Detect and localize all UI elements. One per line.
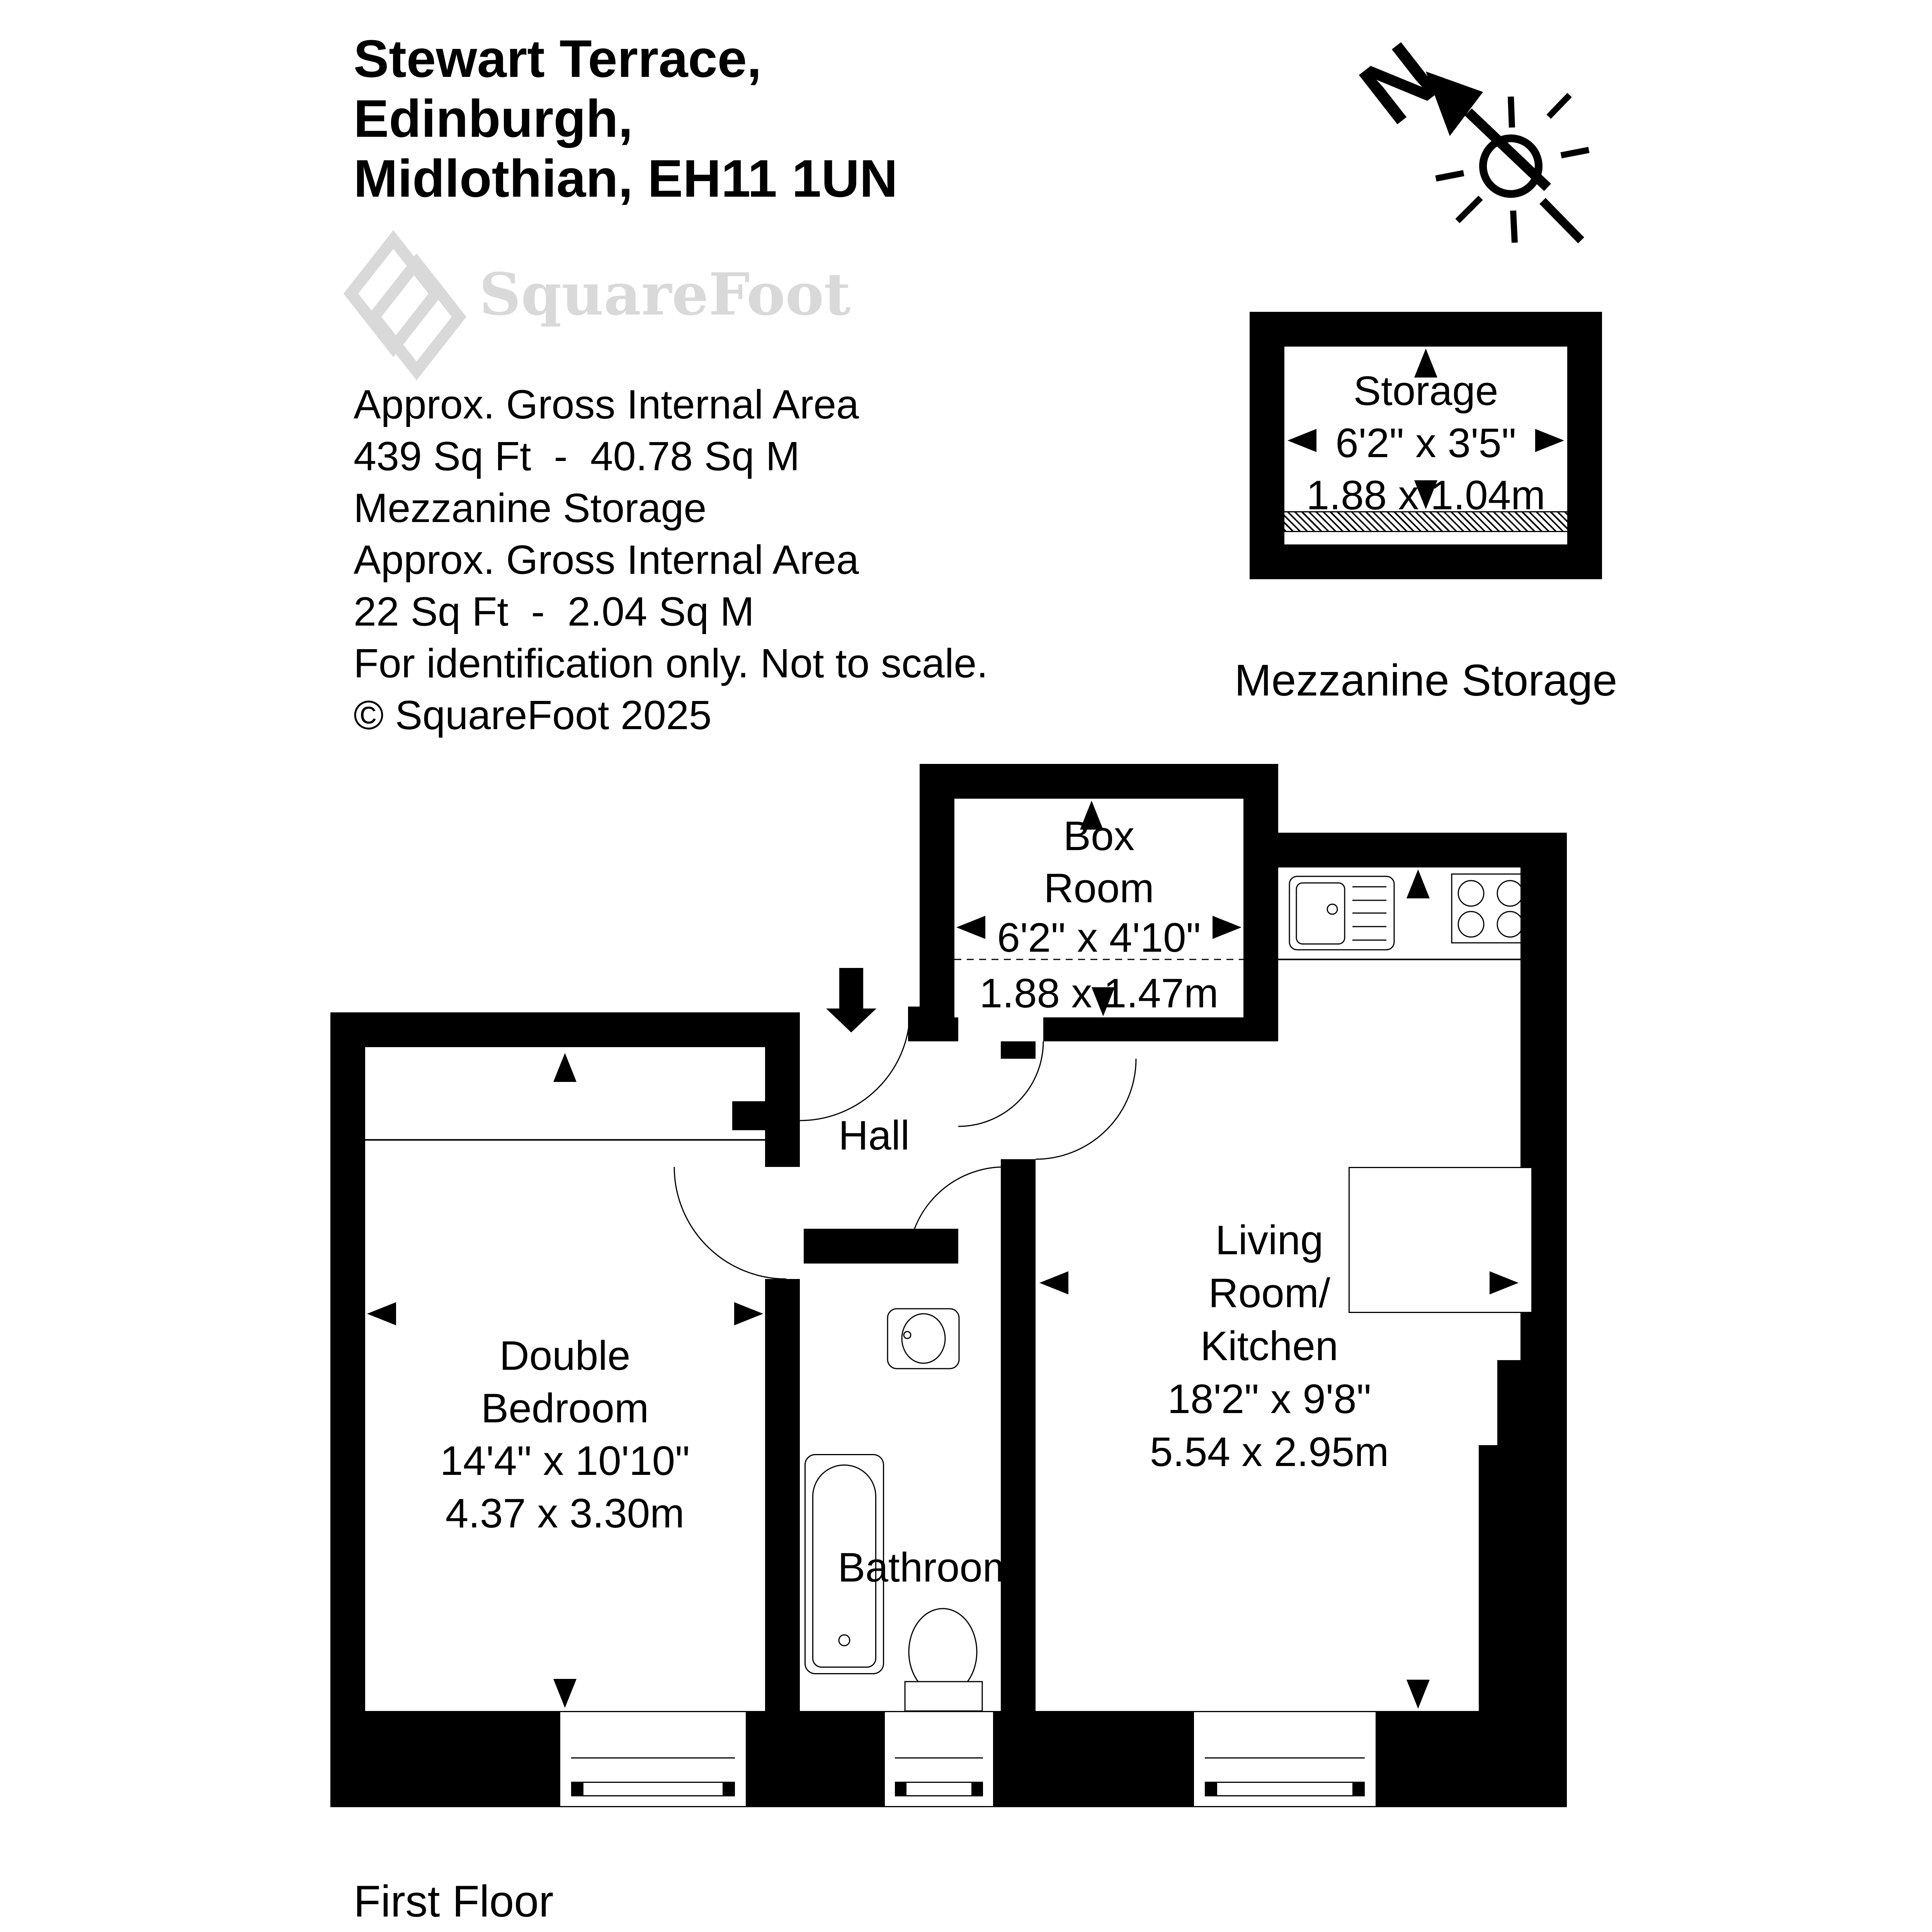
bedroom-label-line2: Bedroom <box>481 1386 649 1431</box>
basin-icon <box>888 1309 959 1369</box>
living-label-line2: Room/ <box>1208 1270 1330 1316</box>
floor-label: First Floor <box>354 1877 554 1926</box>
hall-label: Hall <box>838 1113 910 1158</box>
bedroom-dimension-arrow-left-icon <box>367 1302 396 1325</box>
bath-drain-icon <box>839 1635 850 1646</box>
boxroom-label-line1: Box <box>1063 813 1134 859</box>
bathroom-door-arc <box>908 1167 1005 1264</box>
north-arrow-icon: N <box>1342 23 1589 243</box>
bedroom-dimension-arrow-up-icon <box>553 1053 577 1082</box>
mezz-dimension-arrow-down-icon <box>1414 480 1437 509</box>
kitchen-hob-icon <box>1452 874 1530 943</box>
living-dims-imperial: 18'2" x 9'8" <box>1167 1376 1371 1422</box>
bedroom-label-line1: Double <box>499 1333 630 1379</box>
living-label-line3: Kitchen <box>1201 1323 1338 1369</box>
bathroom-label: Bathroom <box>838 1545 1017 1590</box>
living-dimension-arrow-right-icon <box>1490 1271 1519 1294</box>
boxroom-label-line2: Room <box>1044 866 1154 911</box>
living-dimension-arrow-up-icon <box>1406 869 1430 898</box>
bedroom-door-arc <box>674 1167 786 1279</box>
boxroom-dimension-arrow-left-icon <box>956 916 985 939</box>
boxroom-dimension-arrow-right-icon <box>1213 916 1242 939</box>
squarefoot-logo-icon <box>351 240 459 371</box>
living-dimension-arrow-down-icon <box>1406 1680 1430 1709</box>
living-dims-metric: 5.54 x 2.95m <box>1150 1429 1389 1475</box>
floorplan-page: Stewart Terrace, Edinburgh, Midlothian, … <box>0 0 1932 1932</box>
entrance-arrow-icon <box>826 968 876 1032</box>
mezz-dimension-arrow-right-icon <box>1535 429 1564 452</box>
bedroom-dims-metric: 4.37 x 3.30m <box>446 1491 685 1536</box>
kitchen-sink-icon <box>1289 876 1394 950</box>
living-dimension-arrow-left-icon <box>1039 1271 1068 1294</box>
living-label-line1: Living <box>1215 1218 1323 1263</box>
living-door-arc <box>1036 1059 1136 1159</box>
mezz-dimension-arrow-left-icon <box>1287 429 1316 452</box>
mezz-dimension-arrow-up-icon <box>1414 349 1437 378</box>
boxroom-door-arc <box>958 1041 1043 1126</box>
bedroom-dims-imperial: 14'4" x 10'10" <box>440 1438 690 1484</box>
boxroom-dims-metric: 1.88 x 1.47m <box>980 971 1219 1016</box>
toilet-icon <box>905 1609 982 1711</box>
plan-graphics-layer: N <box>0 0 1932 1932</box>
boxroom-dims-imperial: 6'2" x 4'10" <box>997 915 1201 961</box>
bedroom-dimension-arrow-down-icon <box>553 1679 577 1708</box>
bedroom-dimension-arrow-right-icon <box>734 1302 763 1325</box>
